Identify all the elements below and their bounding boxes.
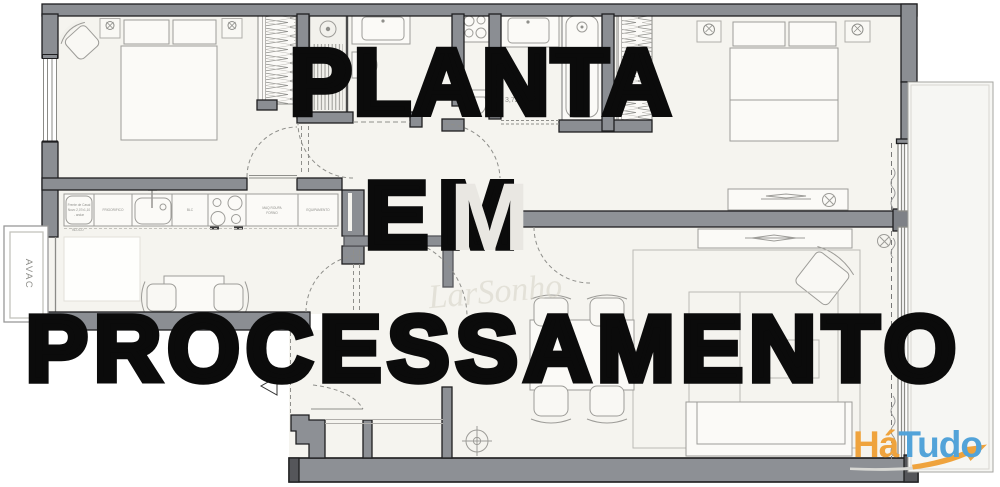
svg-text:FRIGORIFICO: FRIGORIFICO [103, 208, 124, 212]
svg-text:PLANTA: PLANTA [290, 30, 673, 134]
svg-text:Novo 2,07x1,10: Novo 2,07x1,10 [68, 208, 91, 212]
svg-text:PROCESSAMENTO: PROCESSAMENTO [26, 297, 962, 401]
svg-text:Frente de Casal: Frente de Casal [68, 203, 91, 207]
svg-text:FORNO: FORNO [266, 211, 278, 215]
svg-text:AVAC: AVAC [23, 259, 34, 289]
svg-text:EQUIPAMENTO: EQUIPAMENTO [306, 208, 330, 212]
svg-text:- andar: - andar [74, 213, 85, 217]
svg-text:M: M [450, 165, 529, 271]
svg-text:BLC: BLC [187, 208, 194, 212]
svg-text:MAQ ROUPA: MAQ ROUPA [262, 206, 282, 210]
svg-text:HáTudo: HáTudo [853, 424, 982, 465]
